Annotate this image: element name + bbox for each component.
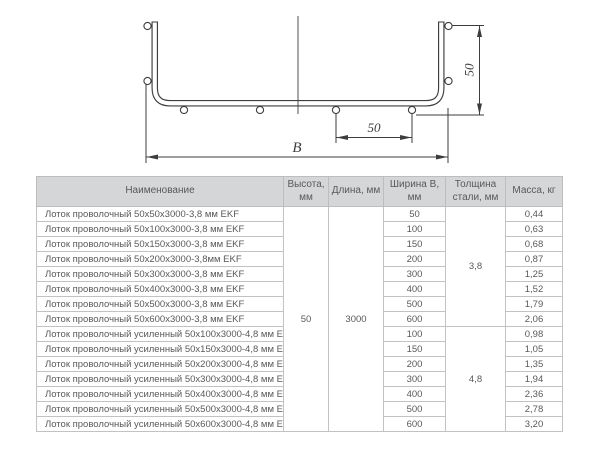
cell-mass: 2,36 [506, 387, 563, 402]
catalog-page: { "diagram": { "width_label": "B", "spac… [0, 0, 600, 450]
wire-circle [408, 106, 415, 113]
cell-mass: 3,20 [506, 417, 563, 432]
spec-table-container: Наименование Высота, мм Длина, мм Ширина… [36, 176, 563, 432]
cell-name: Лоток проволочный усиленный 50х500х3000-… [37, 402, 284, 417]
cell-name: Лоток проволочный 50х50х3000-3,8 мм EKF [37, 207, 284, 222]
cell-name: Лоток проволочный усиленный 50х400х3000-… [37, 387, 284, 402]
cell-mass: 1,94 [506, 372, 563, 387]
header-thickness: Толщина стали, мм [446, 177, 506, 207]
cell-thickness: 4,8 [446, 327, 506, 432]
cell-name: Лоток проволочный усиленный 50х300х3000-… [37, 372, 284, 387]
cell-mass: 1,05 [506, 342, 563, 357]
cell-mass: 0,98 [506, 327, 563, 342]
cell-mass: 0,68 [506, 237, 563, 252]
height-dimension-label: 50 [462, 63, 477, 77]
cell-mass: 1,35 [506, 357, 563, 372]
header-length: Длина, мм [329, 177, 384, 207]
cell-mass: 2,06 [506, 312, 563, 327]
header-mass: Масса, кг [506, 177, 563, 207]
cell-width: 100 [384, 327, 446, 342]
wire-circle [332, 106, 339, 113]
wire-circle [144, 77, 151, 84]
tray-cross-section-drawing: 50 50 B [0, 0, 600, 175]
wire-circle [256, 106, 263, 113]
cell-name: Лоток проволочный 50х100х3000-3,8 мм EKF [37, 222, 284, 237]
cell-name: Лоток проволочный 50х150х3000-3,8 мм EKF [37, 237, 284, 252]
cell-width: 500 [384, 297, 446, 312]
cell-width: 100 [384, 222, 446, 237]
cell-width: 200 [384, 252, 446, 267]
wire-circle [445, 77, 452, 84]
cell-mass: 1,79 [506, 297, 563, 312]
cell-name: Лоток проволочный 50х600х3000-3,8 мм EKF [37, 312, 284, 327]
cell-name: Лоток проволочный 50х300х3000-3,8 мм EKF [37, 267, 284, 282]
cell-name: Лоток проволочный усиленный 50х150х3000-… [37, 342, 284, 357]
cell-width: 600 [384, 312, 446, 327]
cell-width: 300 [384, 267, 446, 282]
cell-width: 600 [384, 417, 446, 432]
cell-width: 300 [384, 372, 446, 387]
cell-name: Лоток проволочный 50х200х3000-3,8мм EKF [37, 252, 284, 267]
cell-name: Лоток проволочный усиленный 50х100х3000-… [37, 327, 284, 342]
cell-width: 150 [384, 342, 446, 357]
wire-circle [144, 22, 151, 29]
spec-table-body: Лоток проволочный 50х50х3000-3,8 мм EKF5… [37, 207, 563, 432]
cell-mass: 0,44 [506, 207, 563, 222]
cell-name: Лоток проволочный 50х500х3000-3,8 мм EKF [37, 297, 284, 312]
spacing-dimension-label: 50 [368, 120, 382, 135]
cell-width: 400 [384, 387, 446, 402]
cell-length: 3000 [329, 207, 384, 432]
cell-width: 150 [384, 237, 446, 252]
header-name: Наименование [37, 177, 284, 207]
cell-width: 50 [384, 207, 446, 222]
cell-mass: 0,87 [506, 252, 563, 267]
header-height: Высота, мм [284, 177, 329, 207]
cell-mass: 0,63 [506, 222, 563, 237]
cell-thickness: 3,8 [446, 207, 506, 327]
cell-width: 200 [384, 357, 446, 372]
cell-name: Лоток проволочный усиленный 50х600х3000-… [37, 417, 284, 432]
wire-circle [445, 22, 452, 29]
cell-name: Лоток проволочный 50х400х3000-3,8 мм EKF [37, 282, 284, 297]
cell-width: 500 [384, 402, 446, 417]
table-row: Лоток проволочный 50х50х3000-3,8 мм EKF5… [37, 207, 563, 222]
cell-height: 50 [284, 207, 329, 432]
cell-mass: 1,25 [506, 267, 563, 282]
cell-width: 400 [384, 282, 446, 297]
spec-table: Наименование Высота, мм Длина, мм Ширина… [36, 176, 563, 432]
header-width: Ширина В, мм [384, 177, 446, 207]
spec-table-header: Наименование Высота, мм Длина, мм Ширина… [37, 177, 563, 207]
cell-name: Лоток проволочный усиленный 50х200х3000-… [37, 357, 284, 372]
cell-mass: 2,78 [506, 402, 563, 417]
width-dimension-label: B [292, 140, 301, 156]
cell-mass: 1,52 [506, 282, 563, 297]
wire-circle [180, 106, 187, 113]
